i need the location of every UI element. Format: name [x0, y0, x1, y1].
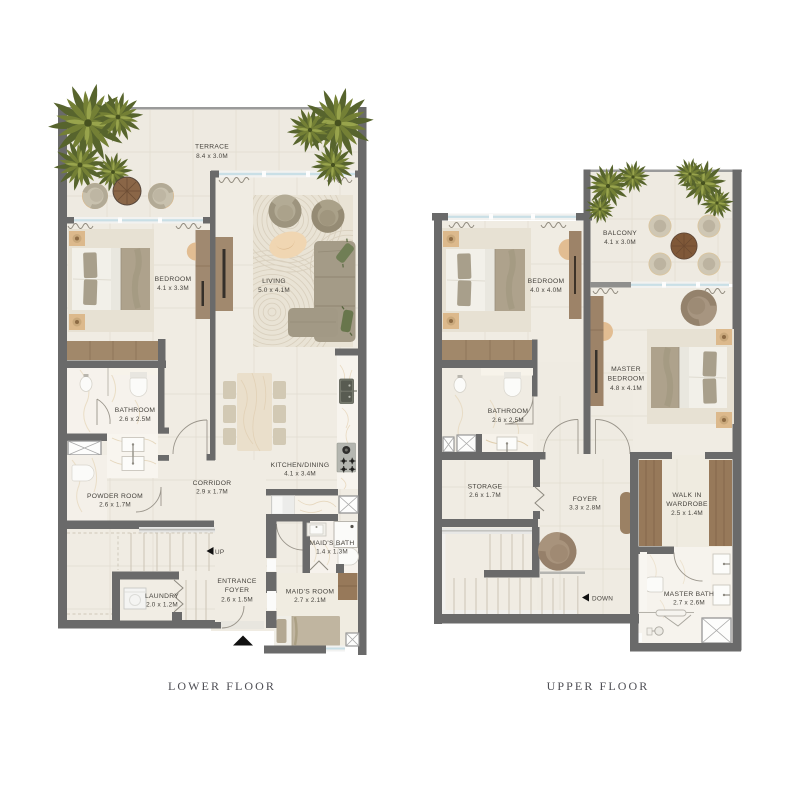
svg-text:3.3 x 2.8M: 3.3 x 2.8M [569, 505, 601, 512]
svg-text:4.0 x 4.0M: 4.0 x 4.0M [530, 287, 562, 294]
svg-text:MAID'S BATH: MAID'S BATH [310, 540, 355, 547]
svg-text:KITCHEN/DINING: KITCHEN/DINING [271, 462, 330, 469]
svg-text:2.9 x 1.7M: 2.9 x 1.7M [196, 489, 228, 496]
svg-text:BATHROOM: BATHROOM [115, 407, 156, 414]
svg-text:2.6 x 1.5M: 2.6 x 1.5M [221, 597, 253, 604]
svg-text:MASTER BATH: MASTER BATH [664, 591, 714, 598]
svg-text:WALK IN: WALK IN [672, 492, 701, 499]
svg-text:DOWN: DOWN [592, 596, 613, 603]
svg-text:WARDROBE: WARDROBE [666, 501, 708, 508]
svg-text:5.0 x 4.1M: 5.0 x 4.1M [258, 287, 290, 294]
svg-text:FOYER: FOYER [225, 587, 250, 594]
svg-text:2.6 x 1.7M: 2.6 x 1.7M [469, 492, 501, 499]
svg-text:2.6 x 2.5M: 2.6 x 2.5M [492, 417, 524, 424]
svg-text:2.6 x 2.5M: 2.6 x 2.5M [119, 416, 151, 423]
svg-text:BEDROOM: BEDROOM [608, 376, 645, 383]
svg-text:2.7 x 2.1M: 2.7 x 2.1M [294, 597, 326, 604]
svg-text:4.1 x 3.0M: 4.1 x 3.0M [604, 239, 636, 246]
svg-text:MAID'S ROOM: MAID'S ROOM [286, 589, 335, 596]
svg-text:BEDROOM: BEDROOM [528, 278, 565, 285]
svg-text:2.6 x 1.7M: 2.6 x 1.7M [99, 502, 131, 509]
svg-text:ENTRANCE: ENTRANCE [217, 578, 256, 585]
svg-text:8.4 x 3.0M: 8.4 x 3.0M [196, 153, 228, 160]
svg-text:4.1 x 3.4M: 4.1 x 3.4M [284, 471, 316, 478]
svg-text:POWDER ROOM: POWDER ROOM [87, 493, 143, 500]
svg-text:FOYER: FOYER [573, 496, 598, 503]
svg-text:2.0 x 1.2M: 2.0 x 1.2M [146, 602, 178, 609]
svg-text:LOWER FLOOR: LOWER FLOOR [168, 679, 276, 693]
svg-text:LIVING: LIVING [262, 278, 286, 285]
svg-text:2.5 x 1.4M: 2.5 x 1.4M [671, 510, 703, 517]
svg-text:MASTER: MASTER [611, 366, 641, 373]
svg-text:4.8 x 4.1M: 4.8 x 4.1M [610, 385, 642, 392]
svg-text:BEDROOM: BEDROOM [155, 276, 192, 283]
svg-text:4.1 x 3.3M: 4.1 x 3.3M [157, 285, 189, 292]
svg-text:UP: UP [215, 549, 224, 556]
svg-text:CORRIDOR: CORRIDOR [193, 480, 232, 487]
svg-text:TERRACE: TERRACE [195, 144, 229, 151]
svg-text:UPPER FLOOR: UPPER FLOOR [547, 679, 650, 693]
svg-text:1.4 x 1.3M: 1.4 x 1.3M [316, 549, 348, 556]
svg-text:LAUNDRY: LAUNDRY [145, 593, 179, 600]
svg-text:BATHROOM: BATHROOM [488, 408, 529, 415]
svg-text:2.7 x 2.6M: 2.7 x 2.6M [673, 600, 705, 607]
svg-text:BALCONY: BALCONY [603, 230, 637, 237]
svg-text:STORAGE: STORAGE [468, 484, 503, 491]
